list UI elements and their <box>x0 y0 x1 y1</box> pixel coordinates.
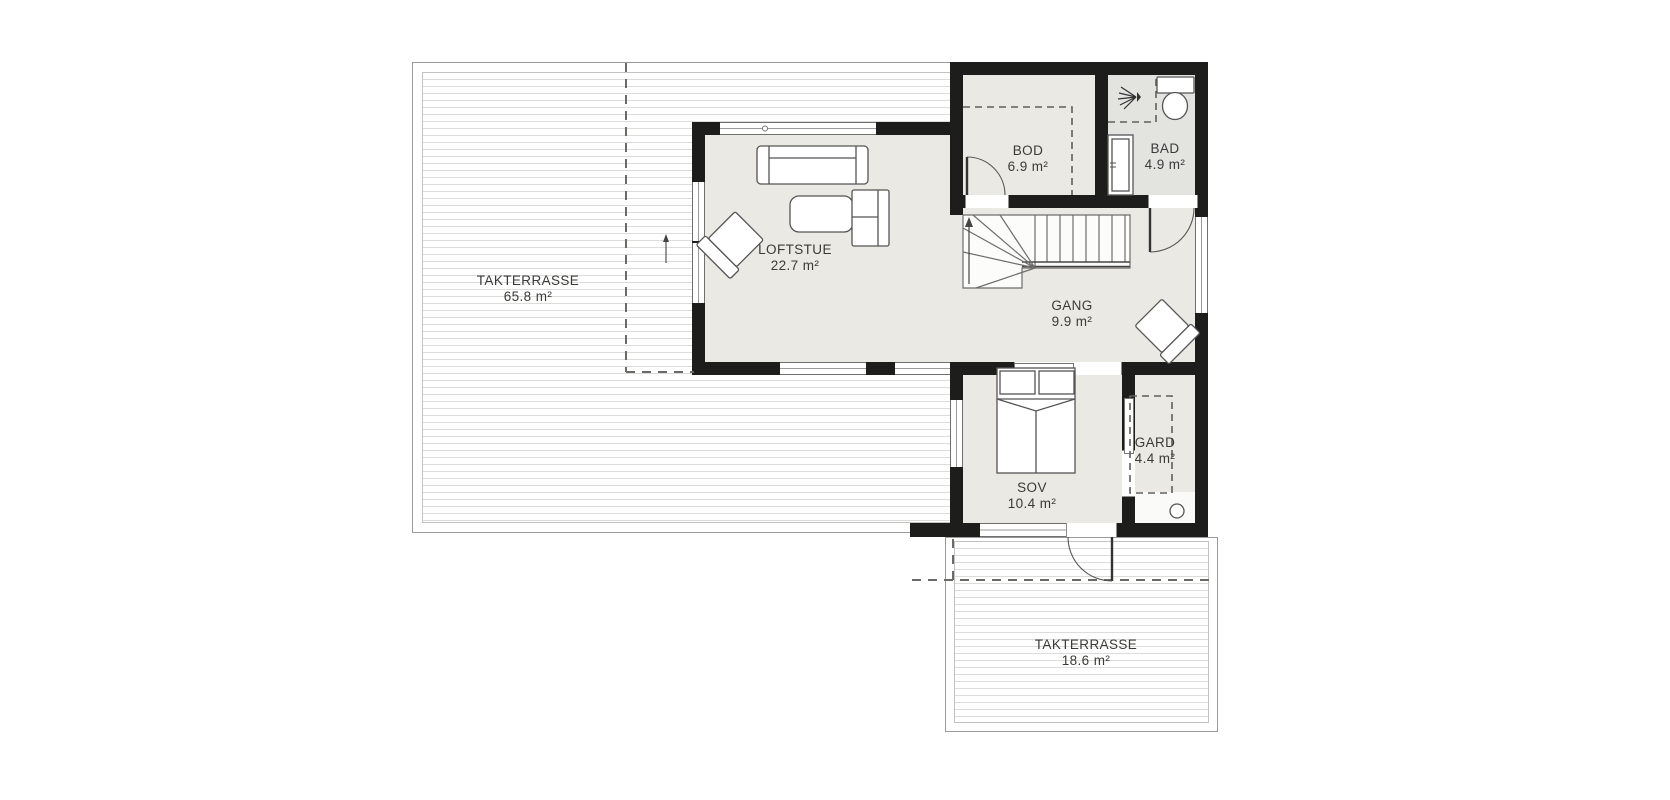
room-name: TAKTERRASSE <box>1035 637 1137 653</box>
shower-icon <box>1118 87 1141 109</box>
room-label-gard: GARD 4.4 m² <box>1135 435 1176 467</box>
room-label-loftstue: LOFTSTUE 22.7 m² <box>758 242 832 274</box>
room-name: BAD <box>1145 141 1186 157</box>
room-name: SOV <box>1008 480 1057 496</box>
door-bod <box>967 157 1005 195</box>
toilet-icon <box>1157 77 1194 120</box>
room-name: BOD <box>1008 143 1049 159</box>
stairs <box>963 215 1130 288</box>
floor-plan: TAKTERRASSE 65.8 m² LOFTSTUE 22.7 m² BOD… <box>0 0 1670 800</box>
armchair-icon <box>852 190 889 246</box>
hall-armchair-icon <box>1133 297 1200 364</box>
room-label-takterrasse-large: TAKTERRASSE 65.8 m² <box>477 273 579 305</box>
floor-drain-icon <box>1170 504 1184 518</box>
room-label-sov: SOV 10.4 m² <box>1008 480 1057 512</box>
room-area: 9.9 m² <box>1051 314 1092 330</box>
room-name: GANG <box>1051 298 1092 314</box>
coffee-table-icon <box>790 196 853 232</box>
room-name: GARD <box>1135 435 1176 451</box>
sink-icon <box>1108 135 1133 195</box>
room-area: 65.8 m² <box>477 289 579 305</box>
lounge-chair-icon <box>696 209 766 279</box>
roof-edge-dashed-line <box>912 539 1214 580</box>
room-label-bad: BAD 4.9 m² <box>1145 141 1186 173</box>
room-area: 6.9 m² <box>1008 159 1049 175</box>
room-name: LOFTSTUE <box>758 242 832 258</box>
room-name: TAKTERRASSE <box>477 273 579 289</box>
bed-icon <box>997 368 1075 473</box>
room-label-gang: GANG 9.9 m² <box>1051 298 1092 330</box>
room-area: 4.4 m² <box>1135 451 1176 467</box>
plan-symbols-layer <box>0 0 1670 800</box>
room-area: 4.9 m² <box>1145 157 1186 173</box>
ceiling-height-dashed-line <box>626 63 694 372</box>
room-label-bod: BOD 6.9 m² <box>1008 143 1049 175</box>
room-label-takterrasse-small: TAKTERRASSE 18.6 m² <box>1035 637 1137 669</box>
room-area: 22.7 m² <box>758 258 832 274</box>
door-sov-terrace <box>1068 537 1112 581</box>
room-area: 18.6 m² <box>1035 653 1137 669</box>
door-bad <box>1150 208 1194 252</box>
sofa-icon <box>757 146 868 184</box>
room-area: 10.4 m² <box>1008 496 1057 512</box>
